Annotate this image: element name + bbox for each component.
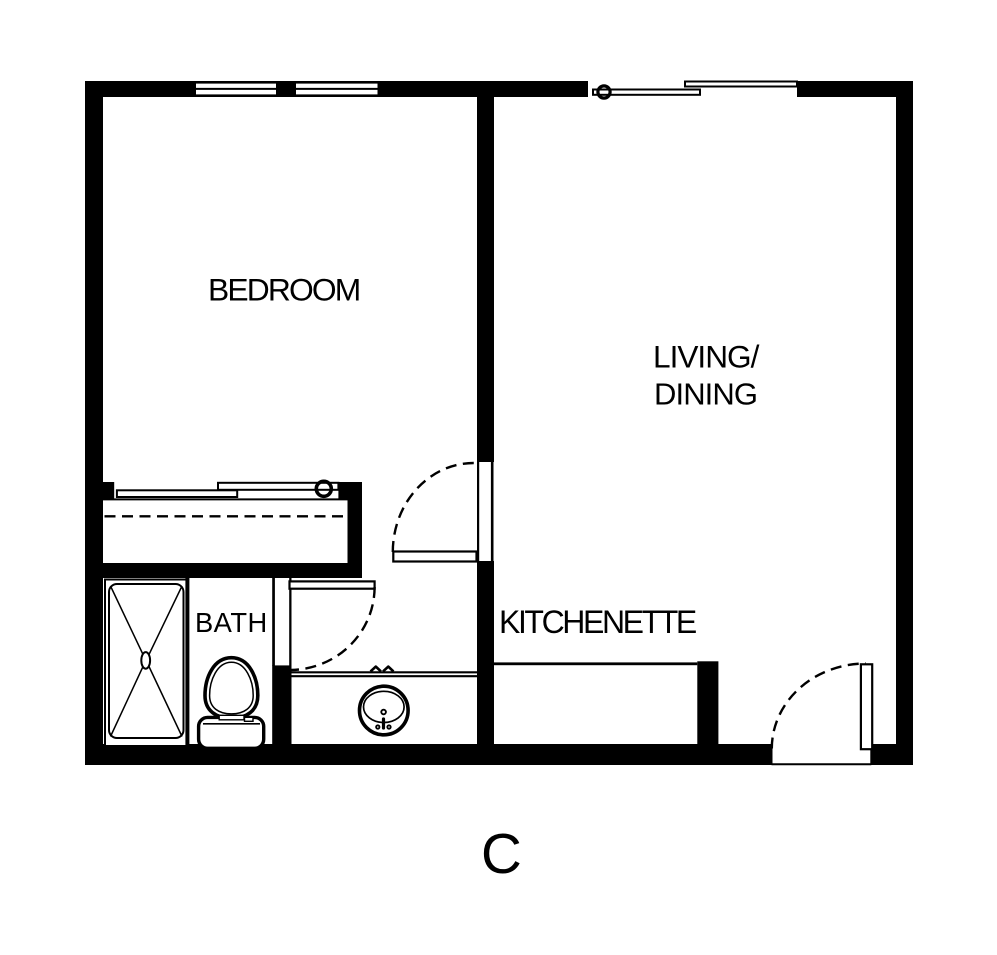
svg-text:KITCHENETTE: KITCHENETTE xyxy=(499,604,696,640)
svg-text:LIVING/: LIVING/ xyxy=(653,338,760,374)
svg-text:BATH: BATH xyxy=(195,607,268,638)
svg-text:C: C xyxy=(481,822,522,885)
svg-text:DINING: DINING xyxy=(654,377,757,412)
svg-text:BEDROOM: BEDROOM xyxy=(208,272,359,308)
